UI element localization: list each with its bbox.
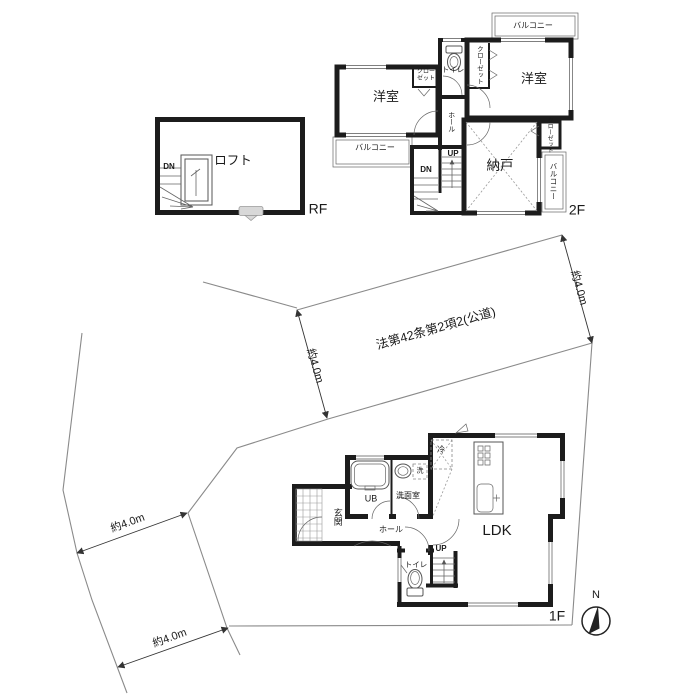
closet-left-line2: ゼット: [417, 76, 435, 82]
compass-north-label: N: [592, 590, 600, 602]
compass-icon: [582, 606, 610, 635]
site-boundary-lines: [63, 235, 592, 693]
ub-label: UB: [365, 494, 378, 503]
rf-floor-tag: RF: [309, 202, 328, 217]
1f-floor-tag: 1F: [549, 609, 565, 624]
rf-loft-label: ロフト: [214, 154, 252, 167]
balcony-left-label: バルコニー: [355, 144, 395, 152]
ldk-label: LDK: [482, 523, 511, 539]
fridge-label: 冷: [437, 446, 445, 454]
toilet-1f-label: トイレ: [405, 561, 428, 569]
porch-tiles: [296, 489, 322, 541]
closet-left-line1: クロー: [417, 69, 435, 75]
balcony-right-label: バルコニー: [549, 162, 557, 200]
rf-floor-plan: [158, 120, 303, 221]
toilet-fixture-1f: [401, 565, 423, 596]
closet-nando-label: クローゼット: [546, 117, 552, 153]
toilet-2f-label: トイレ: [442, 66, 465, 74]
second-floor-plan: [333, 13, 578, 217]
dn-2f-label: DN: [420, 166, 432, 174]
yoshitsu-right-label: 洋室: [521, 72, 547, 86]
nando-label: 納戸: [487, 159, 514, 173]
genkan-label: 玄関: [332, 508, 341, 526]
hall-1f-label: ホール: [379, 526, 403, 534]
bathtub: [351, 461, 389, 490]
hall-2f-label: ホール: [447, 112, 454, 133]
kitchen-counter: [474, 442, 503, 514]
washbasin: [395, 464, 411, 478]
up-2f-label: UP: [447, 150, 458, 158]
washer-label: 洗: [417, 467, 424, 474]
rf-dn-label: DN: [163, 163, 175, 171]
yoshitsu-left-label: 洋室: [373, 90, 399, 104]
closet-right-label: クローゼット: [475, 46, 482, 85]
floorplan-document: ロフト DN RF バルコニー 洋室 クローゼット トイレ クロー ゼット 洋室…: [0, 0, 700, 700]
balcony-top-label: バルコニー: [513, 22, 553, 30]
senmenshitsu-label: 洗面室: [396, 492, 420, 500]
up-1f-label: UP: [435, 545, 446, 553]
2f-floor-tag: 2F: [569, 203, 585, 218]
